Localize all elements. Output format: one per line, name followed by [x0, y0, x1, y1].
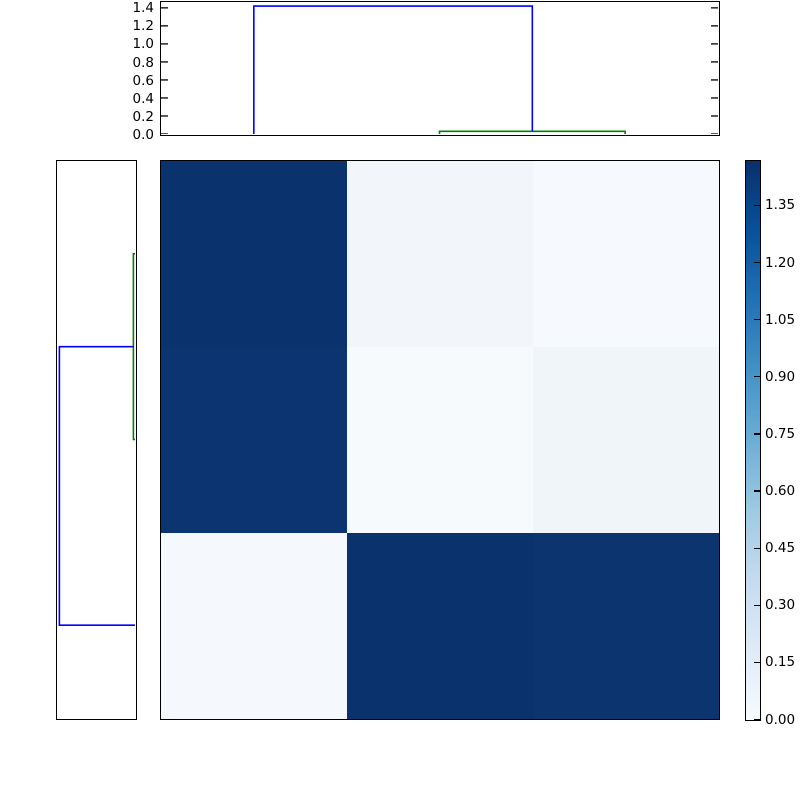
y-axis-tick-label: 1.2 [114, 18, 154, 34]
heatmap-cell-r2c3 [533, 347, 719, 533]
y-axis-tick-label: 0.6 [114, 73, 154, 89]
heatmap-cell-r1c1 [161, 161, 347, 347]
y-axis-tick-label: 0.4 [114, 91, 154, 107]
colorbar-tick-label: 0.90 [765, 369, 800, 385]
heatmap-cell-r1c3 [533, 161, 719, 347]
row-dendrogram-lines [57, 161, 135, 718]
colorbar-tick-label: 0.75 [765, 426, 800, 442]
y-axis-tick-label: 1.0 [114, 36, 154, 52]
colorbar-tick-mark [754, 205, 760, 206]
colorbar-tick-label: 1.35 [765, 197, 800, 213]
colorbar-tick-mark [754, 262, 760, 263]
colorbar-tick-mark [754, 319, 760, 320]
colorbar-tick-mark [754, 376, 760, 377]
colorbar-tick-label: 1.05 [765, 312, 800, 328]
green-link [440, 131, 626, 134]
heatmap-cell-r2c2 [347, 347, 533, 533]
colorbar-tick-mark [754, 719, 760, 720]
colorbar-tick-label: 1.20 [765, 255, 800, 271]
colorbar-tick-label: 0.30 [765, 597, 800, 613]
y-axis-tick-label: 0.2 [114, 109, 154, 125]
heatmap-cell-r3c2 [347, 533, 533, 719]
heatmap-cell-r1c2 [347, 161, 533, 347]
colorbar-tick-mark [754, 490, 760, 491]
colorbar-tick-label: 0.00 [765, 712, 800, 728]
y-axis-tick-label: 0.0 [114, 127, 154, 143]
colorbar-tick-mark [754, 433, 760, 434]
top-dendrogram-panel [160, 1, 720, 136]
heatmap-cell-r3c3 [533, 533, 719, 719]
row-dendrogram-panel [56, 160, 137, 720]
colorbar [745, 160, 761, 721]
figure: 0.00.20.40.60.81.01.21.40.000.150.300.45… [0, 0, 800, 800]
colorbar-tick-mark [754, 605, 760, 606]
heatmap-cell-r2c1 [161, 347, 347, 533]
top-dendrogram-lines [161, 2, 718, 134]
y-axis-tick-label: 1.4 [114, 0, 154, 16]
colorbar-tick-label: 0.15 [765, 654, 800, 670]
blue-link [254, 6, 533, 134]
colorbar-tick-mark [754, 548, 760, 549]
green-link [133, 254, 135, 440]
y-axis-tick-label: 0.8 [114, 55, 154, 71]
blue-link [59, 347, 135, 626]
colorbar-tick-label: 0.45 [765, 540, 800, 556]
colorbar-tick-label: 0.60 [765, 483, 800, 499]
heatmap [160, 160, 720, 720]
heatmap-cell-r3c1 [161, 533, 347, 719]
colorbar-tick-mark [754, 662, 760, 663]
